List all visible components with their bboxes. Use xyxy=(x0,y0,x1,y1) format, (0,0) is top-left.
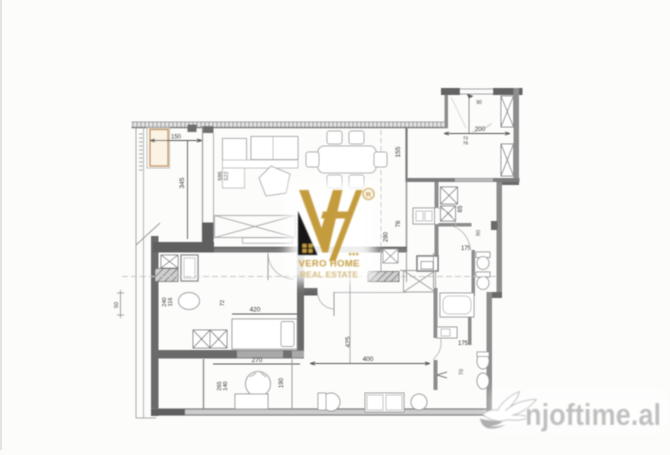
svg-text:270: 270 xyxy=(252,357,263,364)
svg-text:522: 522 xyxy=(224,171,230,180)
svg-text:R: R xyxy=(366,190,372,199)
svg-text:400: 400 xyxy=(363,356,374,363)
svg-text:280: 280 xyxy=(384,231,390,242)
svg-text:345: 345 xyxy=(179,177,186,188)
svg-text:72: 72 xyxy=(220,300,226,306)
svg-text:140: 140 xyxy=(223,381,229,390)
svg-text:200: 200 xyxy=(475,126,486,133)
svg-text:65: 65 xyxy=(458,205,464,212)
svg-text:150: 150 xyxy=(171,135,182,141)
svg-text:90: 90 xyxy=(476,100,482,106)
svg-text:njoftime.al: njoftime.al xyxy=(525,397,661,432)
svg-text:175: 175 xyxy=(458,341,469,347)
svg-text:116: 116 xyxy=(168,298,174,307)
svg-text:420: 420 xyxy=(250,307,261,314)
svg-text:76: 76 xyxy=(463,141,469,147)
svg-text:155: 155 xyxy=(395,146,402,157)
svg-text:70: 70 xyxy=(459,369,465,375)
svg-text:50: 50 xyxy=(114,302,120,308)
svg-text:90: 90 xyxy=(476,230,482,236)
svg-text:REAL ESTATE: REAL ESTATE xyxy=(300,270,358,280)
svg-text:190: 190 xyxy=(279,377,285,388)
svg-text:76: 76 xyxy=(396,220,402,227)
svg-text:425: 425 xyxy=(345,336,352,347)
svg-text:VERO HOME: VERO HOME xyxy=(299,259,360,270)
